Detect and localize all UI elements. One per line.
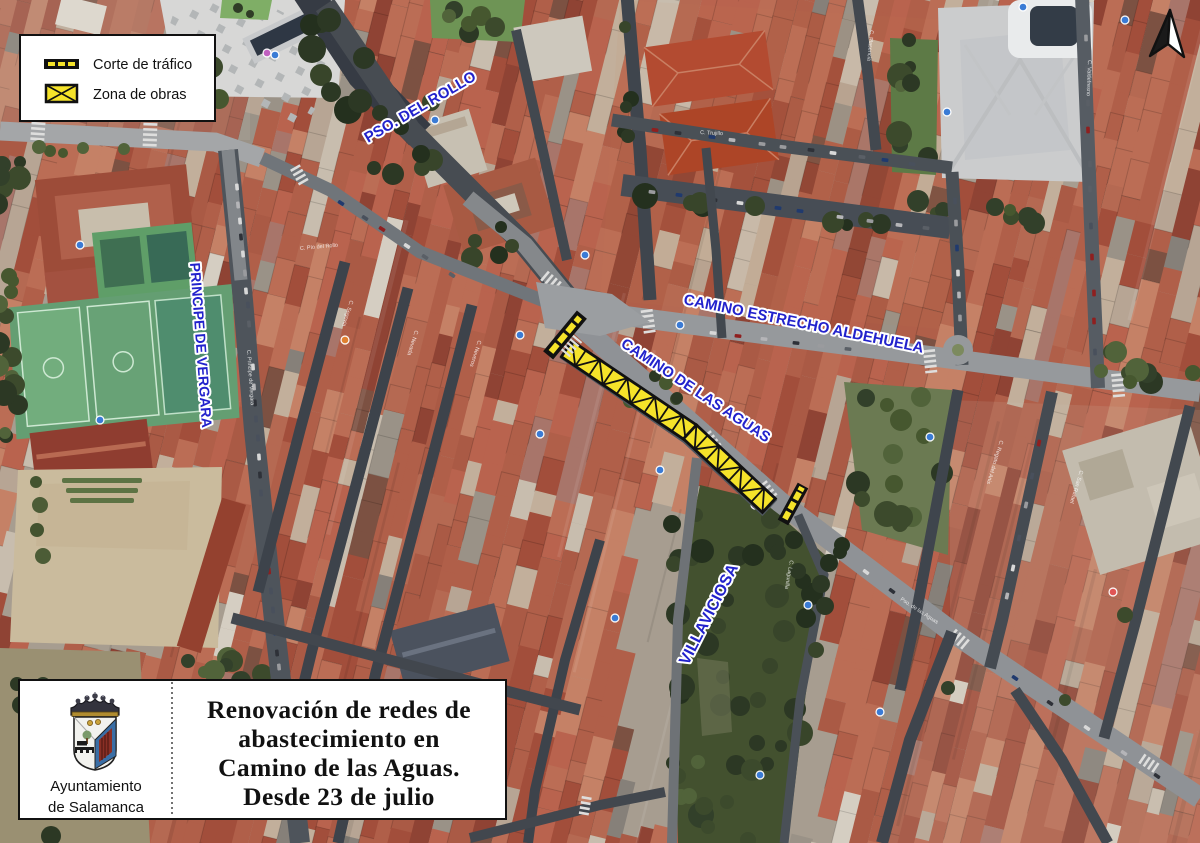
svg-text:Renovación de redes de: Renovación de redes de	[207, 695, 471, 724]
svg-text:C. Valdefresno: C. Valdefresno	[1085, 60, 1092, 96]
svg-text:C. Trujillo: C. Trujillo	[700, 130, 723, 137]
svg-text:abastecimiento en: abastecimiento en	[238, 724, 440, 753]
svg-text:Camino de las Aguas.: Camino de las Aguas.	[218, 753, 460, 782]
svg-text:Ayuntamiento: Ayuntamiento	[50, 778, 141, 795]
svg-text:Corte de tráfico: Corte de tráfico	[93, 57, 192, 73]
svg-text:de Salamanca: de Salamanca	[48, 799, 145, 816]
svg-text:Desde 23 de julio: Desde 23 de julio	[243, 782, 435, 811]
svg-text:Zona de obras: Zona de obras	[93, 87, 187, 103]
